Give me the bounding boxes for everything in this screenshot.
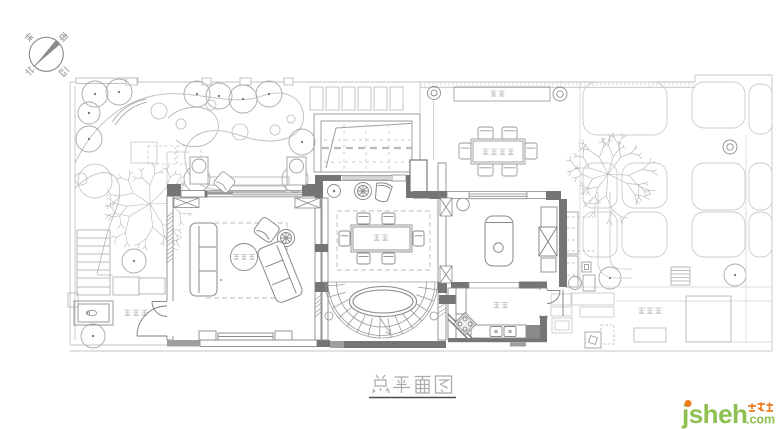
svg-text:.com: .com [746, 413, 775, 427]
